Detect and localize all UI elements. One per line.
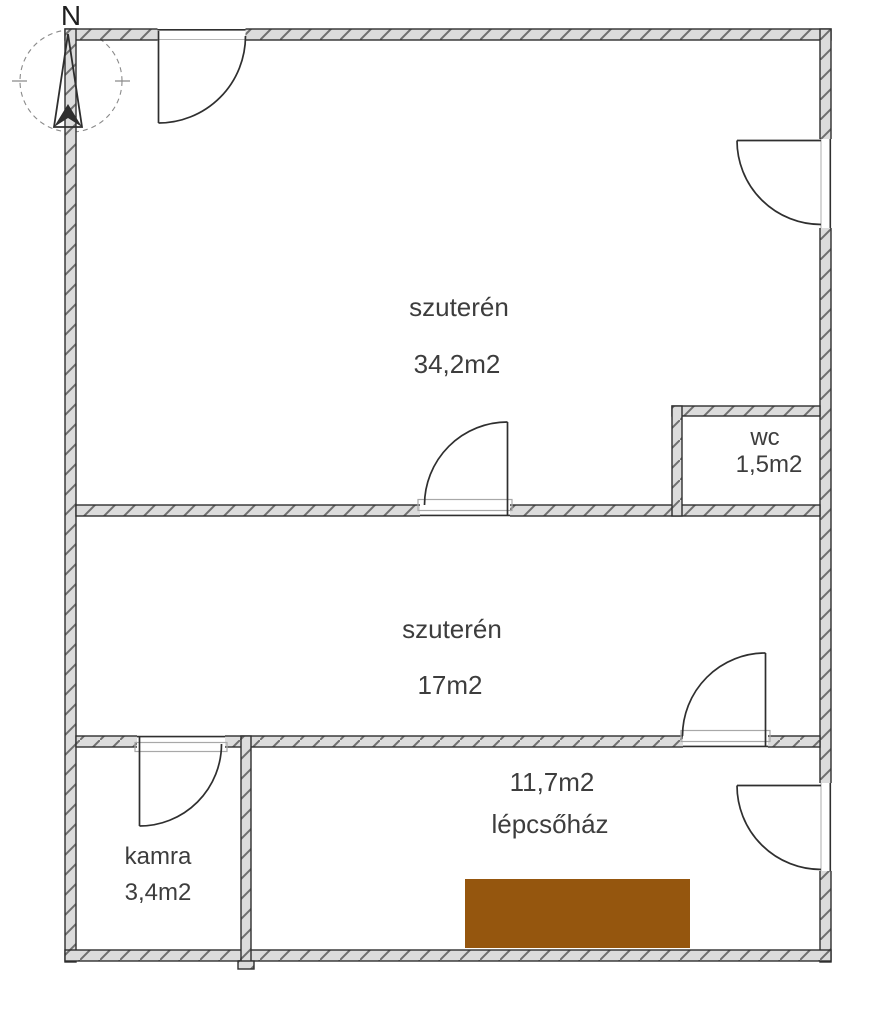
floor-plan-page: N szuterén 34,2m2 wc 1,5m2 szuterén 17m2… — [0, 0, 886, 1024]
area-label-kamra: 3,4m2 — [125, 879, 192, 906]
wall-kamra-end-tab — [238, 961, 254, 969]
door-swing-arc — [683, 653, 766, 736]
wall-wc-top — [672, 406, 820, 416]
north-label: N — [61, 0, 81, 31]
room-label-szuteren-upper: szuterén — [409, 292, 509, 322]
wall-kamra-right — [241, 736, 251, 962]
door-right-lower — [737, 786, 821, 870]
door-divider-upper — [425, 422, 508, 515]
door-swing-arc — [159, 36, 246, 123]
door-top-entrance — [159, 31, 246, 123]
wall-wc-left — [672, 406, 682, 516]
area-label-wc: 1,5m2 — [736, 451, 803, 478]
door-swing-arc — [737, 786, 821, 870]
wall-left — [65, 29, 76, 962]
door-swing-arc — [425, 422, 508, 505]
room-label-wc: wc — [749, 424, 779, 451]
floor-plan-svg: N szuterén 34,2m2 wc 1,5m2 szuterén 17m2… — [0, 0, 886, 1024]
room-label-szuteren-lower: szuterén — [402, 614, 502, 644]
door-kamra — [140, 737, 222, 826]
room-label-kamra: kamra — [125, 843, 192, 870]
area-label-szuteren-lower: 17m2 — [417, 670, 482, 700]
wall-bottom — [65, 950, 831, 961]
room-labels: szuterén 34,2m2 wc 1,5m2 szuterén 17m2 1… — [125, 292, 803, 906]
stairs-block — [465, 879, 690, 948]
door-right-upper — [737, 141, 821, 225]
door-swing-arc — [737, 141, 821, 225]
door-swing-arc — [140, 744, 222, 826]
room-label-lepcsohaz: lépcsőház — [491, 809, 608, 839]
door-stairwell — [683, 653, 766, 746]
area-label-lepcsohaz: 11,7m2 — [510, 767, 595, 797]
area-label-szuteren-upper: 34,2m2 — [414, 349, 501, 379]
